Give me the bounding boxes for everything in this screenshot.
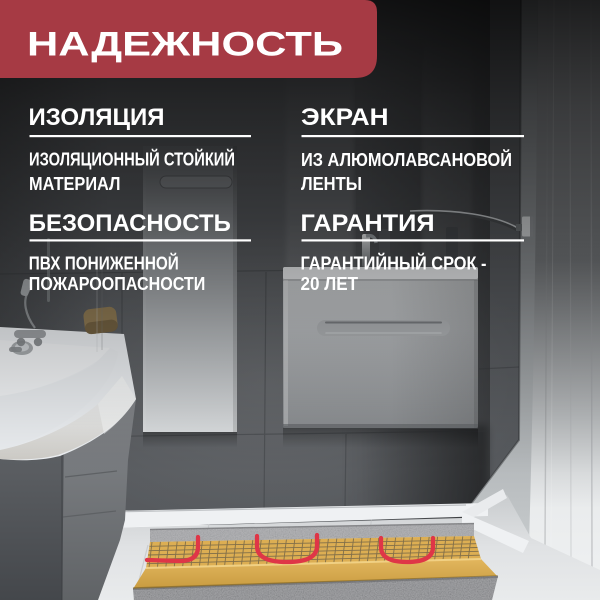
svg-text:ГАРАНТИЙНЫЙ СРОК -: ГАРАНТИЙНЫЙ СРОК -: [301, 253, 487, 274]
svg-text:БЕЗОПАСНОСТЬ: БЕЗОПАСНОСТЬ: [29, 210, 231, 237]
svg-text:НАДЕЖНОСТЬ: НАДЕЖНОСТЬ: [27, 26, 343, 64]
svg-text:ГАРАНТИЯ: ГАРАНТИЯ: [301, 210, 435, 237]
svg-text:МАТЕРИАЛ: МАТЕРИАЛ: [29, 173, 121, 194]
svg-text:ПОЖАРООПАСНОСТИ: ПОЖАРООПАСНОСТИ: [29, 273, 206, 294]
svg-text:ЭКРАН: ЭКРАН: [301, 104, 389, 131]
svg-text:ИЗОЛЯЦИОННЫЙ СТОЙКИЙ: ИЗОЛЯЦИОННЫЙ СТОЙКИЙ: [29, 148, 235, 169]
svg-text:ИЗОЛЯЦИЯ: ИЗОЛЯЦИЯ: [29, 104, 165, 131]
svg-text:ЛЕНТЫ: ЛЕНТЫ: [301, 173, 362, 194]
svg-text:ИЗ АЛЮМОЛАВСАНОВОЙ: ИЗ АЛЮМОЛАВСАНОВОЙ: [301, 149, 512, 170]
svg-text:ПВХ ПОНИЖЕННОЙ: ПВХ ПОНИЖЕННОЙ: [29, 253, 179, 274]
svg-text:20 ЛЕТ: 20 ЛЕТ: [301, 273, 359, 294]
